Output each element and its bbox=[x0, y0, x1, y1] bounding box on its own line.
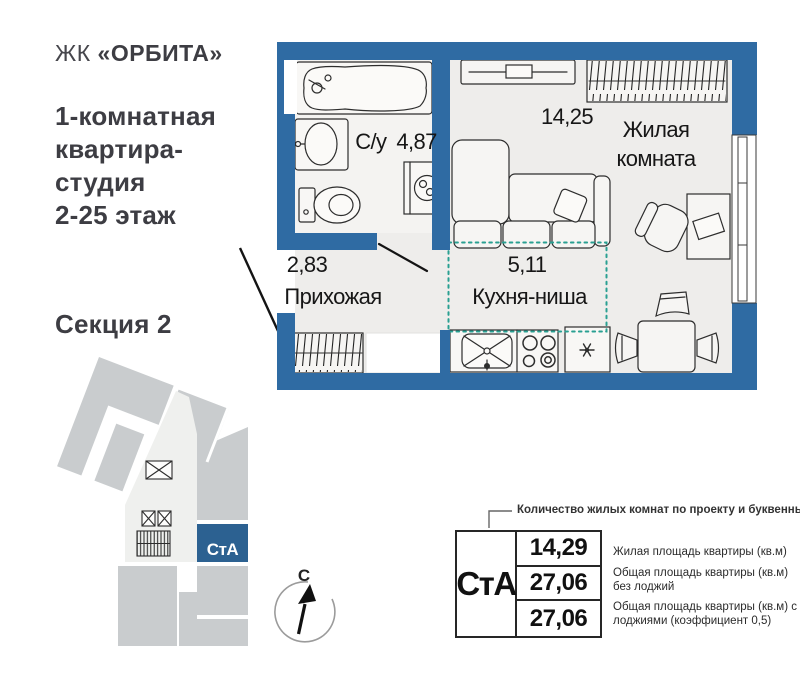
apartment-title-line: квартира- bbox=[55, 133, 216, 166]
section-minimap: СтА bbox=[57, 357, 248, 646]
kitchen-counter bbox=[450, 327, 610, 372]
room-label-bathroom: С/у 4,87 bbox=[336, 127, 456, 156]
room-area-hallway: 2,83 bbox=[267, 250, 347, 279]
floor-plan bbox=[277, 42, 757, 390]
section-label: Секция 2 bbox=[55, 309, 172, 340]
legend-desc: Общая площадь квартиры (кв.м) с лоджиями… bbox=[613, 601, 800, 628]
fridge-icon bbox=[565, 327, 610, 372]
vent-shaft bbox=[284, 60, 297, 114]
legend-desc: Жилая площадь квартиры (кв.м) bbox=[613, 546, 800, 560]
elevator-icon bbox=[146, 461, 172, 479]
legend-value-living-area: 14,29 bbox=[517, 532, 600, 567]
room-area-living: 14,25 bbox=[527, 102, 607, 131]
room-name-kitchen: Кухня-ниша bbox=[452, 282, 607, 311]
minimap-block bbox=[197, 619, 248, 646]
legend-value-total-area: 27,06 bbox=[517, 567, 600, 602]
floorplan-page: СтА С ЖК «ОРБИТА» 1-комнатная квартира- … bbox=[0, 0, 800, 691]
apartment-title: 1-комнатная квартира- студия 2-25 этаж bbox=[55, 100, 216, 232]
hall-wardrobe-icon bbox=[292, 333, 363, 373]
complex-logo: ЖК «ОРБИТА» bbox=[55, 40, 223, 67]
north-label: С bbox=[298, 566, 310, 585]
tv-stand-icon bbox=[461, 60, 575, 84]
minimap-block bbox=[197, 566, 248, 615]
legend-value-total-area-loggia: 27,06 bbox=[517, 601, 600, 636]
legend-unit-code: СтА bbox=[457, 532, 517, 636]
room-name-living: Жилая комната bbox=[597, 115, 715, 173]
room-name-hallway: Прихожая bbox=[258, 282, 408, 311]
apartment-title-line: студия bbox=[55, 166, 216, 199]
complex-logo-name: «ОРБИТА» bbox=[98, 40, 223, 66]
kitchen-sink-icon bbox=[462, 334, 512, 370]
legend-table: СтА 14,29 27,06 27,06 bbox=[455, 530, 602, 638]
wardrobe-icon bbox=[587, 60, 727, 102]
hall-niche bbox=[366, 333, 447, 373]
minimap-unit-highlight: СтА bbox=[197, 524, 248, 562]
compass: С bbox=[275, 566, 335, 642]
toilet-icon bbox=[299, 187, 360, 223]
apartment-title-line: 1-комнатная bbox=[55, 100, 216, 133]
apartment-title-line: 2-25 этаж bbox=[55, 199, 216, 232]
room-area-kitchen: 5,11 bbox=[487, 250, 567, 279]
stairs-icon bbox=[137, 531, 170, 556]
bathtub-icon bbox=[296, 62, 432, 114]
room-name: С/у bbox=[355, 127, 386, 156]
room-area: 4,87 bbox=[396, 127, 436, 156]
legend-callout: Количество жилых комнат по проекту и бук… bbox=[517, 504, 800, 516]
legend-desc: Общая площадь квартиры (кв.м) без лоджий bbox=[613, 567, 800, 594]
window-icon bbox=[732, 135, 756, 303]
complex-logo-prefix: ЖК bbox=[55, 40, 91, 66]
desk-icon bbox=[687, 194, 730, 259]
minimap-block bbox=[118, 566, 177, 646]
minimap-unit-label: СтА bbox=[207, 540, 239, 559]
callout-connector bbox=[489, 511, 512, 528]
minimap-block bbox=[179, 592, 197, 646]
north-arrow-icon bbox=[298, 584, 316, 604]
